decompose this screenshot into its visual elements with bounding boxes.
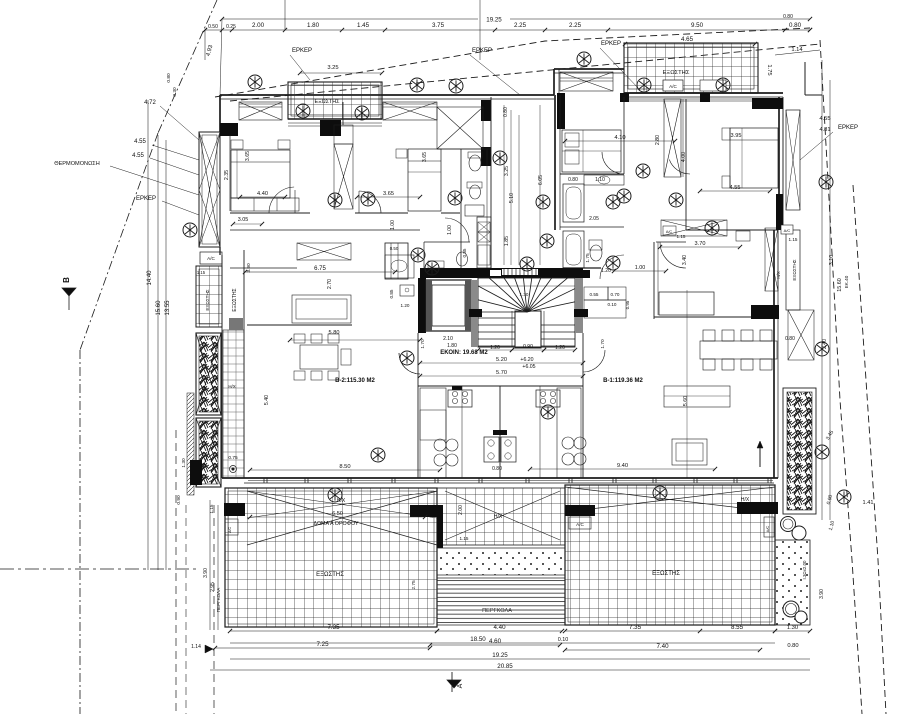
svg-text:A/C: A/C xyxy=(784,228,791,233)
svg-text:0.30: 0.30 xyxy=(172,87,178,97)
svg-text:3.40: 3.40 xyxy=(682,255,688,265)
svg-text:Β-1:119.36 Μ2: Β-1:119.36 Μ2 xyxy=(603,378,643,384)
svg-text:ΕΡΚΕΡ: ΕΡΚΕΡ xyxy=(472,48,492,54)
svg-text:13.55: 13.55 xyxy=(165,300,171,316)
svg-text:3.25: 3.25 xyxy=(504,166,510,176)
svg-text:2.00: 2.00 xyxy=(252,22,265,29)
svg-text:ΠΕΡΓΚΟΛΑ: ΠΕΡΓΚΟΛΑ xyxy=(482,608,512,614)
svg-text:Η/Χ: Η/Χ xyxy=(228,384,235,389)
svg-text:1.20: 1.20 xyxy=(401,303,410,308)
svg-text:Η/Χ: Η/Χ xyxy=(494,514,503,520)
svg-text:0.80: 0.80 xyxy=(503,107,509,117)
svg-text:ΕΚ.40: ΕΚ.40 xyxy=(844,275,849,288)
svg-text:5.40: 5.40 xyxy=(264,395,270,405)
svg-text:ΕΞΩΣΤΗΣ: ΕΞΩΣΤΗΣ xyxy=(316,572,344,578)
svg-text:14.40: 14.40 xyxy=(147,270,153,286)
svg-text:1.75: 1.75 xyxy=(585,253,591,263)
svg-text:A/C: A/C xyxy=(207,256,215,261)
svg-text:1.15: 1.15 xyxy=(789,237,798,242)
svg-text:0.75: 0.75 xyxy=(228,455,238,461)
svg-text:4.40: 4.40 xyxy=(493,624,506,631)
svg-text:2.75: 2.75 xyxy=(411,580,417,590)
svg-text:1.15: 1.15 xyxy=(197,270,206,275)
svg-text:0.80: 0.80 xyxy=(789,22,802,29)
svg-text:5.10: 5.10 xyxy=(509,193,515,203)
svg-text:B: B xyxy=(62,277,71,283)
svg-text:19.25: 19.25 xyxy=(486,17,502,24)
svg-text:4.55: 4.55 xyxy=(730,185,741,191)
svg-text:ΕΡΚΕΡ: ΕΡΚΕΡ xyxy=(601,41,621,47)
svg-text:A/C: A/C xyxy=(669,84,677,89)
svg-text:1.20: 1.20 xyxy=(490,345,500,351)
svg-text:1.41: 1.41 xyxy=(863,500,874,506)
svg-text:ΕΚΟΙΝ: 19.68 Μ2: ΕΚΟΙΝ: 19.68 Μ2 xyxy=(440,350,488,356)
svg-text:1.30: 1.30 xyxy=(520,292,529,297)
svg-text:ΕΞΩΣΤΗΣ: ΕΞΩΣΤΗΣ xyxy=(652,571,680,577)
svg-text:0.55: 0.55 xyxy=(590,292,599,297)
svg-text:Η/Χ: Η/Χ xyxy=(741,497,750,503)
svg-text:3.75: 3.75 xyxy=(432,22,445,29)
svg-text:Ι.3Ωx2.00: Ι.3Ωx2.00 xyxy=(802,560,807,579)
svg-text:6.05: 6.05 xyxy=(538,175,544,185)
svg-text:A: A xyxy=(457,683,464,688)
svg-text:4.81: 4.81 xyxy=(819,127,830,133)
svg-text:4.72: 4.72 xyxy=(144,100,156,106)
svg-text:9.40: 9.40 xyxy=(617,463,628,469)
svg-text:3.70: 3.70 xyxy=(695,241,706,247)
svg-text:3.95: 3.95 xyxy=(731,133,742,139)
svg-text:1.15: 1.15 xyxy=(209,504,214,513)
svg-text:4.55: 4.55 xyxy=(819,116,830,122)
svg-text:1.75: 1.75 xyxy=(766,64,772,75)
svg-text:+6.20: +6.20 xyxy=(520,357,533,363)
svg-text:9.50: 9.50 xyxy=(691,22,704,29)
svg-text:1.30: 1.30 xyxy=(787,625,798,631)
svg-text:3.90: 3.90 xyxy=(203,568,209,578)
svg-text:1.30: 1.30 xyxy=(181,458,187,468)
svg-text:ΕΡΚΕΡ: ΕΡΚΕΡ xyxy=(838,125,858,131)
svg-text:0.90: 0.90 xyxy=(176,495,182,505)
svg-text:1.00: 1.00 xyxy=(390,220,396,230)
svg-text:1.20: 1.20 xyxy=(555,345,565,351)
svg-text:0.80: 0.80 xyxy=(783,14,793,20)
svg-text:0.95: 0.95 xyxy=(625,300,630,309)
svg-text:3.10: 3.10 xyxy=(829,255,835,266)
svg-text:0.10: 0.10 xyxy=(558,637,569,643)
svg-text:15.60: 15.60 xyxy=(837,278,843,292)
svg-text:0.90: 0.90 xyxy=(523,344,533,350)
svg-text:8.50: 8.50 xyxy=(339,464,350,470)
svg-text:Η/Χ: Η/Χ xyxy=(776,271,781,278)
svg-text:0.80: 0.80 xyxy=(166,73,172,83)
svg-text:7.35: 7.35 xyxy=(327,624,340,631)
svg-text:0.80: 0.80 xyxy=(787,643,798,649)
svg-text:1.15: 1.15 xyxy=(460,536,469,541)
svg-text:2.25: 2.25 xyxy=(569,22,582,29)
svg-text:5.20: 5.20 xyxy=(496,357,507,363)
svg-text:ΔΩΜΑ Α ΟΡΟΦΟΥ: ΔΩΜΑ Α ΟΡΟΦΟΥ xyxy=(313,521,359,527)
svg-text:8.55: 8.55 xyxy=(731,624,744,631)
svg-text:Β-2:115.30 Μ2: Β-2:115.30 Μ2 xyxy=(335,378,375,384)
svg-text:1.85: 1.85 xyxy=(504,236,510,246)
svg-text:0.10: 0.10 xyxy=(608,302,617,307)
svg-text:3.65: 3.65 xyxy=(383,191,394,197)
svg-text:0.85: 0.85 xyxy=(462,248,467,257)
svg-text:ΕΞΩΣΤΗΣ: ΕΞΩΣΤΗΣ xyxy=(792,259,797,280)
svg-text:ΕΞΩΣΤΗΣ: ΕΞΩΣΤΗΣ xyxy=(232,288,238,311)
svg-text:1.80: 1.80 xyxy=(307,22,320,29)
svg-text:2.00: 2.00 xyxy=(429,508,435,518)
svg-text:0.80: 0.80 xyxy=(492,466,502,472)
svg-text:7.25: 7.25 xyxy=(316,641,329,648)
svg-text:1.14: 1.14 xyxy=(191,644,201,650)
svg-text:6.50: 6.50 xyxy=(332,511,343,517)
svg-text:ΠΕΡΓΚΟΛΑ: ΠΕΡΓΚΟΛΑ xyxy=(216,587,221,612)
svg-text:A/C: A/C xyxy=(228,527,232,534)
svg-text:5.80: 5.80 xyxy=(329,330,340,336)
svg-text:2.05: 2.05 xyxy=(589,216,599,222)
svg-text:ΕΞΩΣΤΗΣ: ΕΞΩΣΤΗΣ xyxy=(315,99,341,105)
svg-text:19.25: 19.25 xyxy=(492,652,508,659)
svg-text:1.10: 1.10 xyxy=(595,177,605,183)
svg-text:ΕΞΩΣΤΗΣ: ΕΞΩΣΤΗΣ xyxy=(663,70,690,76)
svg-text:1.80: 1.80 xyxy=(447,343,457,349)
svg-text:+6.05: +6.05 xyxy=(522,364,535,370)
svg-text:ΕΞΩΣΤΗΣ: ΕΞΩΣΤΗΣ xyxy=(205,289,210,310)
svg-text:0.70: 0.70 xyxy=(611,292,620,297)
svg-text:2.70: 2.70 xyxy=(327,279,333,289)
svg-text:15.60: 15.60 xyxy=(156,300,162,316)
svg-text:2.10: 2.10 xyxy=(443,336,453,342)
svg-text:1.70: 1.70 xyxy=(420,339,426,349)
svg-text:4.60: 4.60 xyxy=(489,638,502,645)
svg-text:7.40: 7.40 xyxy=(656,643,669,650)
svg-text:0.25: 0.25 xyxy=(226,24,236,30)
svg-text:5.60: 5.60 xyxy=(683,396,689,406)
svg-text:3.65: 3.65 xyxy=(422,152,428,162)
svg-text:A/C: A/C xyxy=(765,526,770,533)
svg-text:2.00: 2.00 xyxy=(458,505,464,515)
svg-text:3.90: 3.90 xyxy=(819,589,825,599)
svg-text:0.85: 0.85 xyxy=(389,289,394,298)
svg-text:0.50: 0.50 xyxy=(208,24,218,30)
svg-text:1.00: 1.00 xyxy=(635,265,646,271)
svg-text:A/C: A/C xyxy=(576,522,584,527)
svg-text:7.35: 7.35 xyxy=(629,624,642,631)
svg-text:4.40: 4.40 xyxy=(257,191,268,197)
svg-text:1.70: 1.70 xyxy=(600,339,606,349)
svg-text:3.25: 3.25 xyxy=(327,65,338,71)
svg-text:3.65: 3.65 xyxy=(245,151,251,161)
svg-text:1.45: 1.45 xyxy=(357,22,370,29)
svg-text:4.65: 4.65 xyxy=(681,36,694,43)
svg-text:ΘΕΡΜΟΜΟΝΩΣΗ: ΘΕΡΜΟΜΟΝΩΣΗ xyxy=(54,161,100,167)
svg-text:4.55: 4.55 xyxy=(132,153,144,159)
svg-text:6.75: 6.75 xyxy=(314,266,326,272)
svg-text:1.00: 1.00 xyxy=(447,225,453,235)
svg-text:4.55: 4.55 xyxy=(134,139,146,145)
svg-text:2.25: 2.25 xyxy=(514,22,527,29)
svg-text:2.35: 2.35 xyxy=(224,170,230,180)
svg-text:18.50: 18.50 xyxy=(470,636,486,643)
svg-text:0.50: 0.50 xyxy=(390,246,399,251)
svg-text:1.15: 1.15 xyxy=(677,234,686,239)
svg-text:20.85: 20.85 xyxy=(497,663,513,670)
svg-text:ΕΡΚΕΡ: ΕΡΚΕΡ xyxy=(136,196,156,202)
svg-text:0.80: 0.80 xyxy=(568,177,578,183)
svg-text:ΕΡΚΕΡ: ΕΡΚΕΡ xyxy=(292,48,312,54)
svg-text:3.05: 3.05 xyxy=(238,217,249,223)
svg-text:2.80: 2.80 xyxy=(655,135,661,145)
svg-text:0.80: 0.80 xyxy=(785,336,795,342)
svg-text:5.70: 5.70 xyxy=(496,370,507,376)
